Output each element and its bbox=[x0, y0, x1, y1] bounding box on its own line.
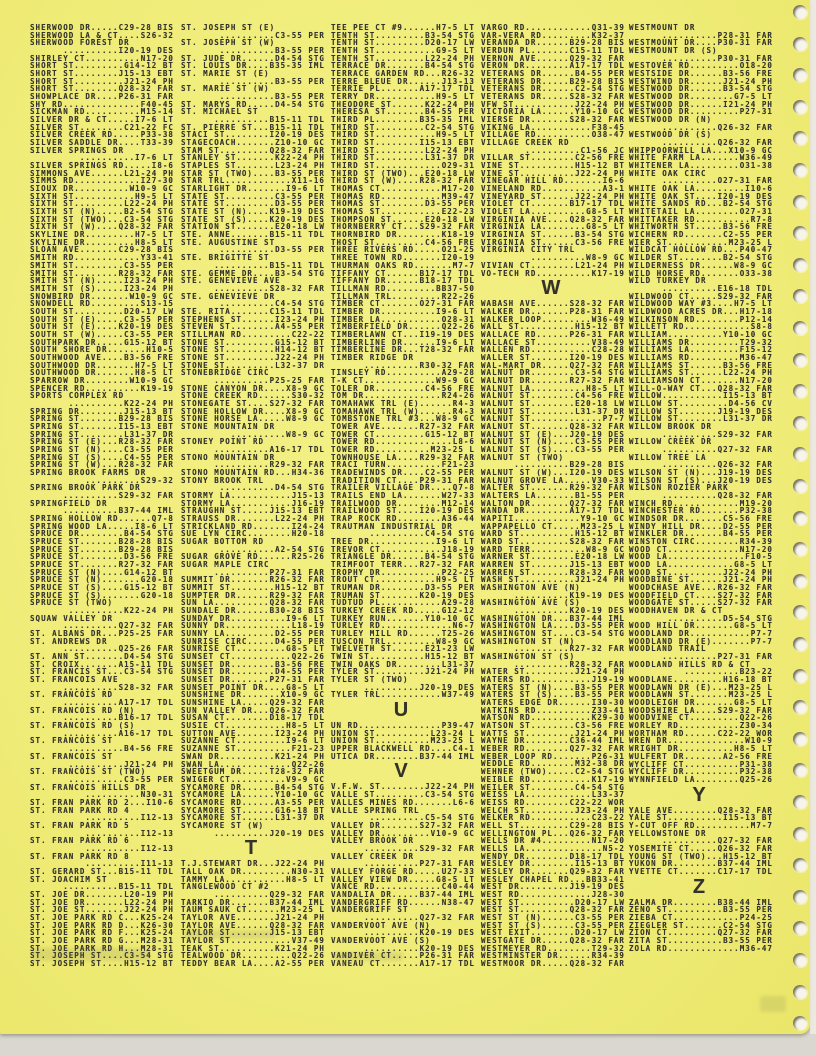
binding-hole bbox=[793, 605, 807, 619]
binding-hole bbox=[793, 858, 807, 872]
binding-hole bbox=[793, 447, 807, 461]
page-right-edge bbox=[810, 0, 816, 1034]
binding-hole bbox=[793, 289, 807, 303]
index-entry: TEDDY BEAR LA....A2-55 PER bbox=[181, 960, 333, 968]
section-header-U: U bbox=[331, 699, 471, 722]
binding-hole bbox=[793, 669, 807, 683]
index-entry-ref: ..........J20-19 DES bbox=[181, 830, 333, 838]
index-column-3: TEE PEE CT #9......H7-5 LTTENTH ST......… bbox=[331, 24, 483, 968]
binding-hole bbox=[793, 700, 807, 714]
index-column-4: VARGO RD............Q31-39VAR-VERA RD...… bbox=[481, 24, 633, 968]
binding-hole bbox=[793, 321, 807, 335]
binding-hole bbox=[793, 921, 807, 935]
section-header-T: T bbox=[181, 837, 321, 860]
binding-hole bbox=[793, 827, 807, 841]
binding-hole bbox=[793, 574, 807, 588]
index-page-sheet: SHERWOOD DR.....C29-28 BISSHERWOOD LA & … bbox=[0, 0, 810, 1034]
index-entry: VANEAU CT.......A17-17 TDL bbox=[331, 960, 483, 968]
binding-hole bbox=[793, 195, 807, 209]
index-entry: WESTMOOR DR.....Q28-32 FAR bbox=[481, 960, 633, 968]
binding-hole bbox=[793, 1016, 807, 1030]
binding-hole bbox=[793, 258, 807, 272]
binding-hole bbox=[793, 68, 807, 82]
binding-hole bbox=[793, 637, 807, 651]
index-entry: WYNNFIELD LA........Q25-26 bbox=[629, 776, 781, 784]
binding-hole bbox=[793, 511, 807, 525]
binding-hole bbox=[793, 131, 807, 145]
ink-smudge bbox=[760, 996, 786, 1012]
index-entry: UTICA DR........B37-44 IML bbox=[331, 753, 483, 761]
binding-hole bbox=[793, 763, 807, 777]
index-entry: ST. JOSEPH ST....H15-12 BT bbox=[30, 960, 182, 968]
index-column-5: WESTMOUNT DR ..........P28-31 FARWESTMOU… bbox=[629, 24, 781, 952]
binding-hole bbox=[793, 985, 807, 999]
index-entry: ZOLA RD.............M36-47 bbox=[629, 945, 781, 953]
section-header-Z: Z bbox=[629, 876, 769, 899]
binding-hole bbox=[793, 384, 807, 398]
index-entry: YVETTE CT.......C17-17 TDL bbox=[629, 868, 781, 876]
binding-hole bbox=[793, 100, 807, 114]
binding-hole bbox=[793, 353, 807, 367]
section-header-Y: Y bbox=[629, 784, 769, 807]
scanned-street-index-page: { "colors": { "page_bg": "#f0ed7b", "tex… bbox=[0, 0, 816, 1056]
index-entry: TYLER TRL...........W37-49 bbox=[331, 691, 483, 699]
section-header-W: W bbox=[481, 277, 621, 300]
binding-hole bbox=[793, 732, 807, 746]
binding-hole bbox=[793, 226, 807, 240]
binding-hole bbox=[793, 37, 807, 51]
binding-hole bbox=[793, 5, 807, 19]
binding-hole bbox=[793, 163, 807, 177]
index-column-1: SHERWOOD DR.....C29-28 BISSHERWOOD LA & … bbox=[30, 24, 182, 968]
binding-hole bbox=[793, 795, 807, 809]
section-header-V: V bbox=[331, 760, 471, 783]
binding-hole bbox=[793, 542, 807, 556]
binding-hole bbox=[793, 479, 807, 493]
binding-hole bbox=[793, 416, 807, 430]
binding-hole bbox=[793, 953, 807, 967]
index-column-2: ST. JOSEPH ST (E) ..........C3-55 PERST.… bbox=[181, 24, 333, 968]
index-entry: VO-TECH RD..........K17-19 bbox=[481, 270, 633, 278]
binding-hole bbox=[793, 890, 807, 904]
